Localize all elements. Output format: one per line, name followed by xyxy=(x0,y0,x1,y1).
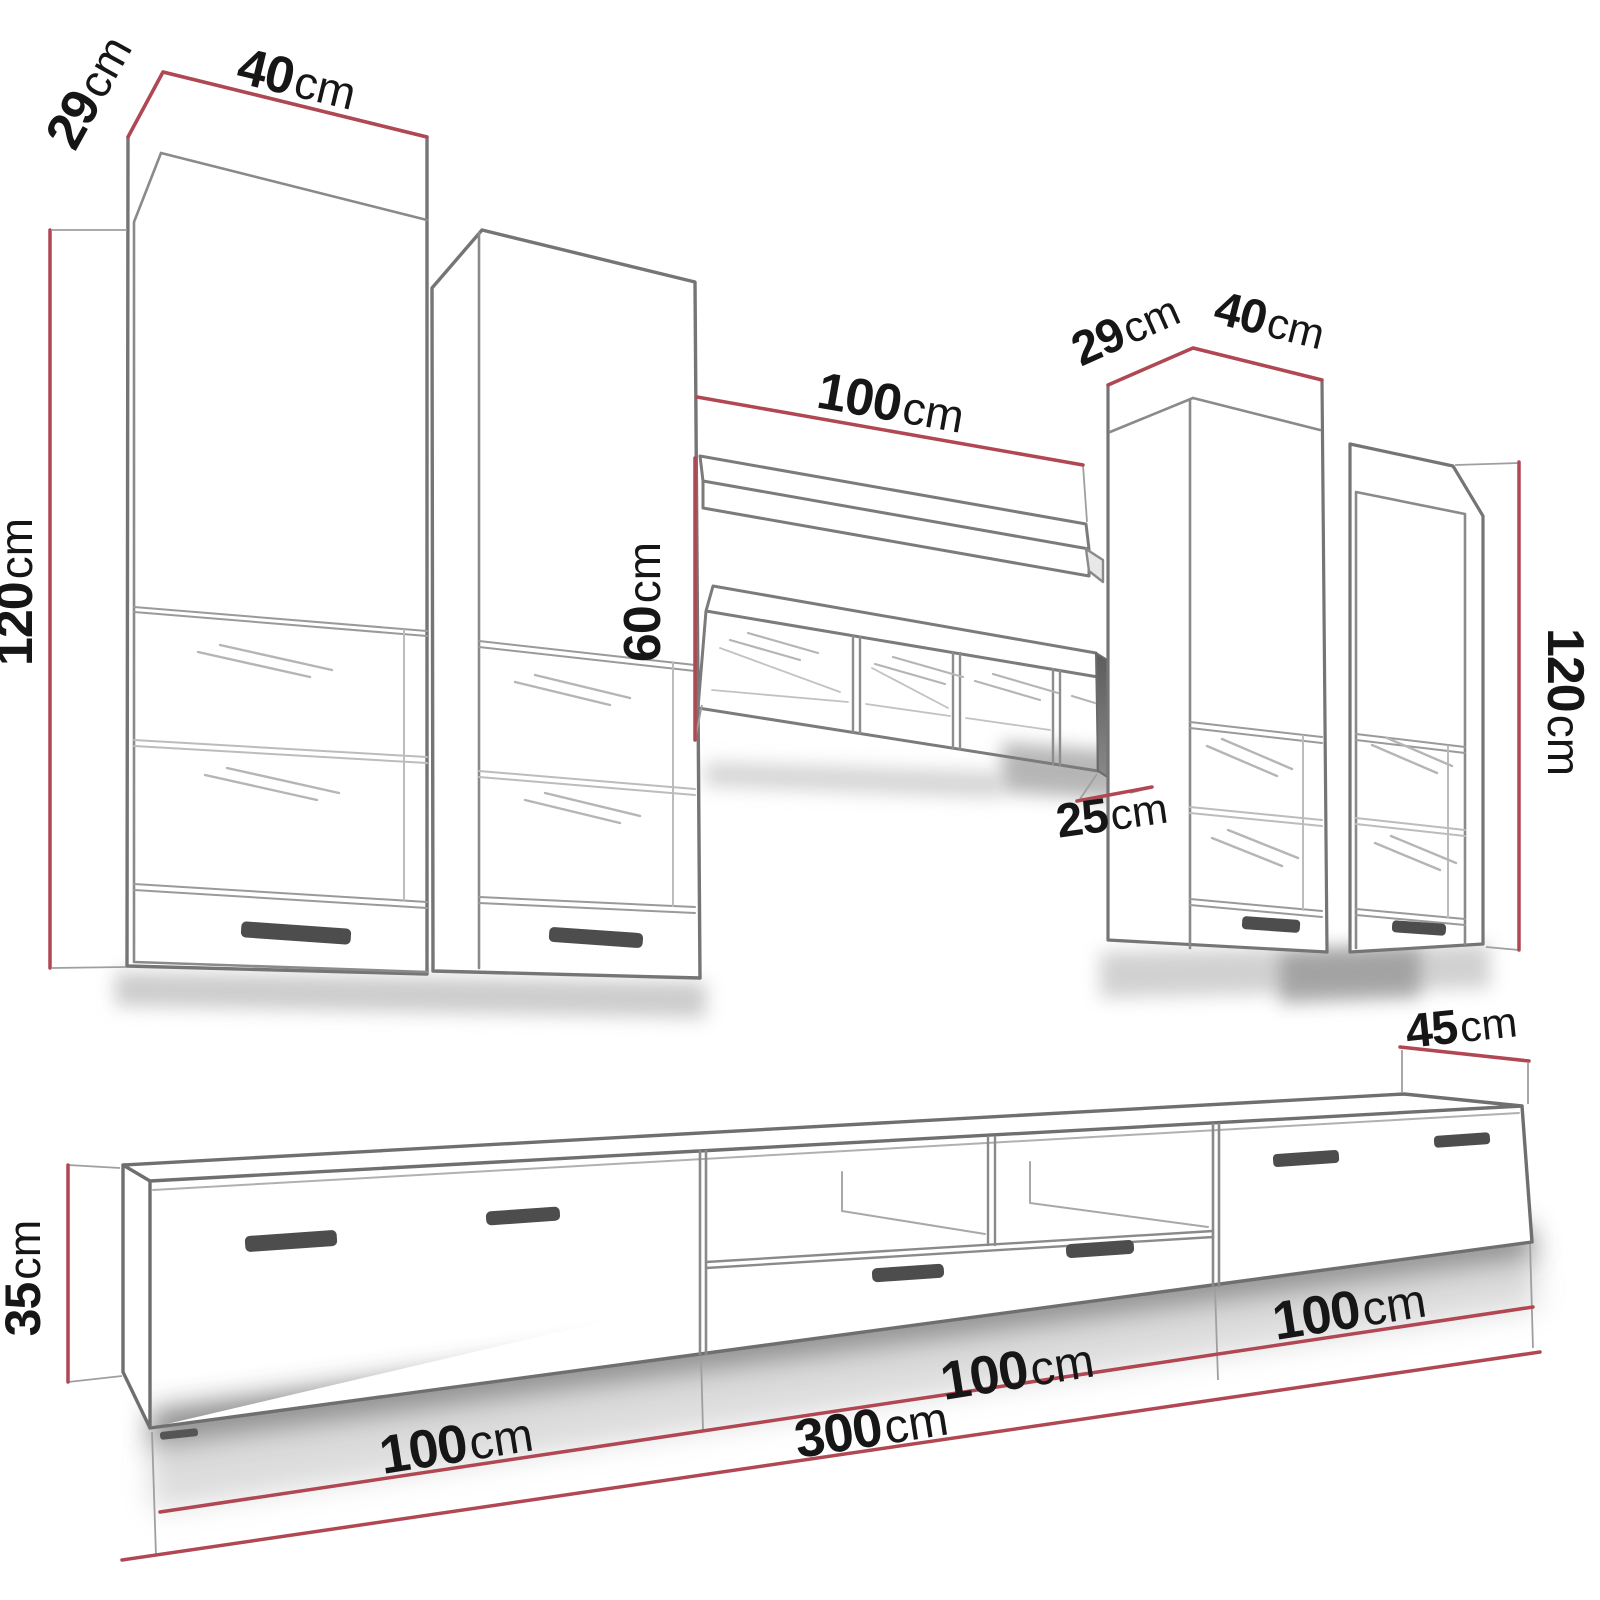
furniture-dimension-diagram: 40cm 29cm 120cm 100cm 60cm 25cm 29cm 40c… xyxy=(0,0,1600,1600)
right-wall-cabinet-1 xyxy=(1108,348,1327,952)
dim-tv-section1-unit: cm xyxy=(465,1408,536,1470)
dim-shelf-height-label: 60cm xyxy=(614,542,672,662)
dim-tv-section1-value: 100 xyxy=(375,1413,470,1486)
dim-left-height-value: 120 xyxy=(0,582,44,666)
dim-tv-height-value: 35 xyxy=(0,1283,51,1337)
dim-left-height-label: 120cm xyxy=(0,518,44,666)
hanging-shelf-unit xyxy=(698,456,1128,790)
dim-shelf-width-value: 100 xyxy=(813,362,906,434)
dim-shelf-depth-value: 25 xyxy=(1053,789,1112,849)
shadow-under-right-cabinets-dark xyxy=(1280,946,1420,1004)
dim-tv-total-unit: cm xyxy=(880,1392,951,1454)
left-wall-cabinet-1 xyxy=(127,72,427,974)
left-door-handle-1 xyxy=(245,1230,338,1252)
right-wall-cabinet-2 xyxy=(1350,444,1483,952)
dim-left-height-unit: cm xyxy=(0,518,42,579)
dim-shelf-depth-unit: cm xyxy=(1107,785,1170,841)
dim-shelf-width-unit: cm xyxy=(899,381,968,443)
cabinet-outline xyxy=(1350,444,1483,952)
dim-tv-depth-unit: cm xyxy=(1458,998,1520,1052)
shelf-box-frame xyxy=(698,586,1098,771)
diagram-svg: 40cm 29cm 120cm 100cm 60cm 25cm 29cm 40c… xyxy=(0,0,1600,1600)
dim-tv-total-value: 300 xyxy=(790,1397,885,1470)
dim-tv-section2-unit: cm xyxy=(1026,1334,1097,1396)
left-door-handle-2 xyxy=(486,1206,561,1225)
dim-shelf-height-value: 60 xyxy=(614,606,672,662)
dim-tv-height-unit: cm xyxy=(0,1220,50,1280)
dim-right-height-unit: cm xyxy=(1538,715,1590,776)
cabinet-outline xyxy=(127,72,427,974)
dim-tv-depth-value: 45 xyxy=(1403,1001,1460,1059)
dim-tv-section3-value: 100 xyxy=(1268,1279,1363,1352)
dim-right-width-value: 40 xyxy=(1209,282,1272,346)
dim-tv-section3-unit: cm xyxy=(1358,1274,1429,1336)
wall-shelf xyxy=(700,456,1089,576)
dim-tv-height-label: 35cm xyxy=(0,1220,51,1337)
dim-tv-depth-label: 45cm xyxy=(1403,994,1520,1058)
dim-right-width-unit: cm xyxy=(1262,299,1329,359)
cabinet-outline xyxy=(1108,348,1327,952)
shadow-under-left-cabinets xyxy=(115,972,706,1018)
dim-right-width-label: 40cm xyxy=(1209,282,1330,360)
shadow-under-shelf-box xyxy=(705,762,1000,798)
dim-shelf-width-label: 100cm xyxy=(813,362,969,445)
dim-tv-section2-value: 100 xyxy=(936,1339,1031,1412)
dim-right-height-value: 120 xyxy=(1536,628,1594,712)
dim-shelf-height-unit: cm xyxy=(618,542,670,603)
dim-right-height-label: 120cm xyxy=(1536,628,1594,776)
